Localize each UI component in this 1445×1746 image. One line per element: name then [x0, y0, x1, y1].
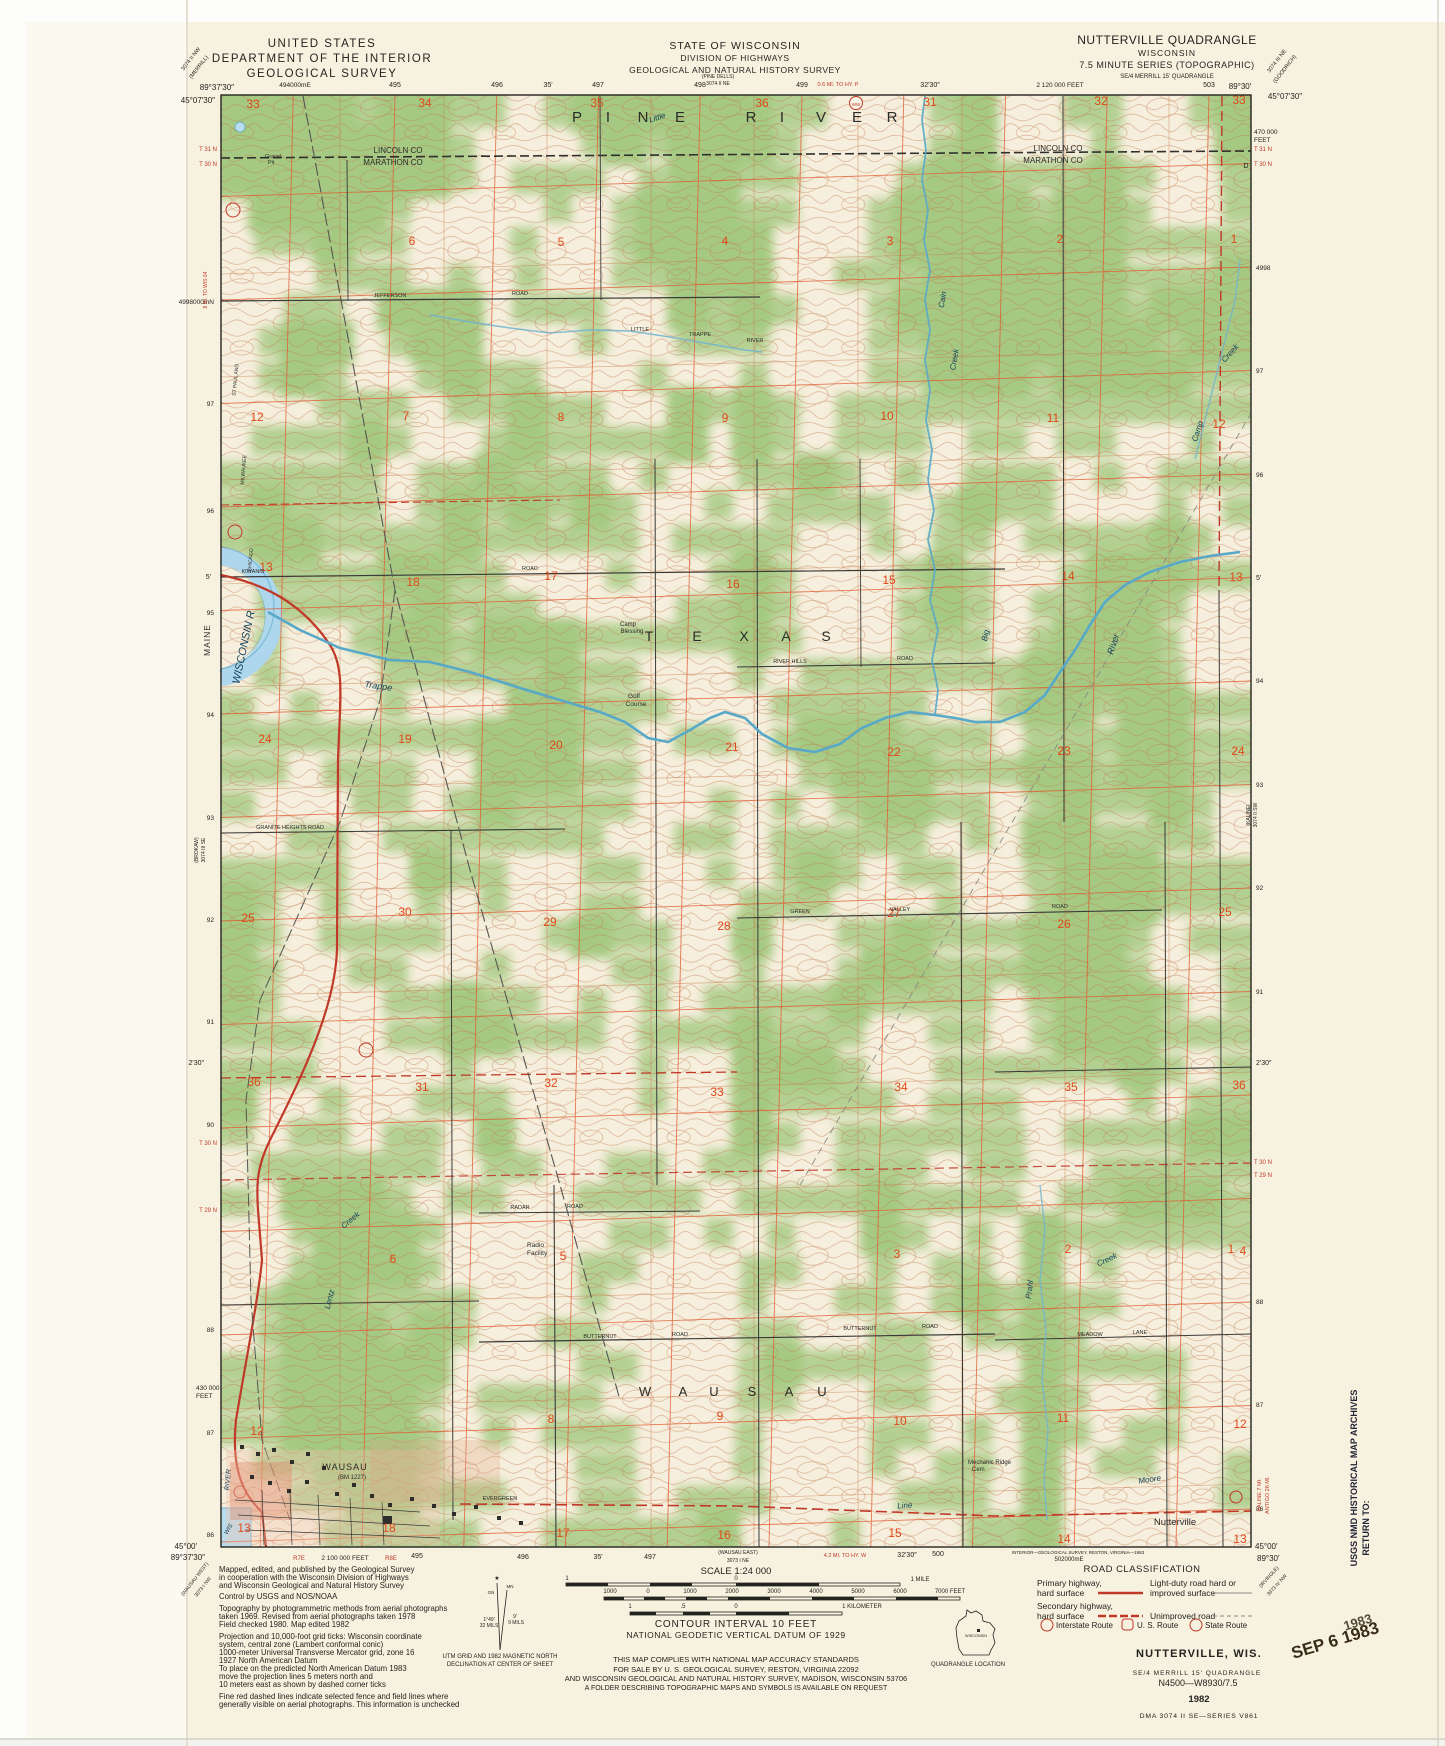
- svg-text:28: 28: [717, 919, 731, 933]
- svg-text:87: 87: [207, 1430, 215, 1437]
- svg-text:24: 24: [258, 732, 272, 746]
- svg-text:T: T: [645, 628, 654, 644]
- svg-text:N4500—W8930/7.5: N4500—W8930/7.5: [1158, 1678, 1237, 1688]
- svg-text:I: I: [780, 109, 784, 126]
- svg-text:Golf: Golf: [628, 693, 640, 700]
- svg-text:11: 11: [1057, 1411, 1070, 1425]
- svg-text:1 MILE: 1 MILE: [910, 1577, 929, 1583]
- svg-text:SE/4 MERRILL 15' QUADRANGLE: SE/4 MERRILL 15' QUADRANGLE: [1120, 74, 1214, 80]
- svg-text:497: 497: [644, 1554, 656, 1561]
- svg-text:45°07′30″: 45°07′30″: [1268, 92, 1302, 101]
- svg-text:A: A: [785, 1384, 794, 1399]
- svg-text:TRAPPE: TRAPPE: [689, 332, 711, 338]
- svg-text:STATE OF WISCONSIN: STATE OF WISCONSIN: [669, 40, 800, 52]
- svg-text:A: A: [679, 1384, 688, 1399]
- svg-text:I: I: [606, 109, 610, 126]
- svg-text:Nutterville: Nutterville: [1154, 1517, 1196, 1528]
- svg-text:86: 86: [207, 1532, 215, 1539]
- svg-text:1: 1: [1231, 232, 1238, 246]
- svg-text:2000: 2000: [725, 1589, 739, 1595]
- svg-text:JEFFERSON: JEFFERSON: [374, 293, 407, 299]
- svg-text:17: 17: [544, 569, 558, 583]
- svg-text:Primary highway,: Primary highway,: [1037, 1578, 1102, 1588]
- svg-text:4: 4: [722, 234, 729, 248]
- svg-text:ROAD: ROAD: [522, 566, 538, 572]
- svg-text:A: A: [781, 628, 791, 644]
- svg-text:(PINE DELLS): (PINE DELLS): [702, 74, 735, 80]
- svg-text:6: 6: [390, 1252, 397, 1266]
- svg-text:P: P: [572, 109, 582, 126]
- svg-text:35': 35': [543, 82, 552, 89]
- svg-text:495: 495: [389, 82, 401, 89]
- svg-text:500: 500: [932, 1551, 944, 1558]
- svg-text:ROAD: ROAD: [1052, 904, 1068, 910]
- svg-text:34: 34: [418, 96, 432, 110]
- svg-text:45°07′30″: 45°07′30″: [181, 96, 215, 105]
- svg-text:GEOLOGICAL AND NATURAL HISTORY: GEOLOGICAL AND NATURAL HISTORY SURVEY: [629, 65, 841, 75]
- svg-text:494000mE: 494000mE: [279, 82, 311, 89]
- svg-text:7000 FEET: 7000 FEET: [935, 1589, 966, 1595]
- svg-text:31: 31: [415, 1080, 429, 1094]
- svg-text:R8E: R8E: [385, 1556, 397, 1562]
- svg-text:Secondary highway,: Secondary highway,: [1037, 1601, 1113, 1611]
- svg-text:T 30 N: T 30 N: [199, 162, 217, 168]
- svg-text:11: 11: [1047, 411, 1060, 425]
- svg-text:20: 20: [549, 738, 563, 752]
- svg-text:THIS MAP COMPLIES WITH NATIONA: THIS MAP COMPLIES WITH NATIONAL MAP ACCU…: [613, 1655, 859, 1664]
- svg-text:W: W: [639, 1384, 652, 1399]
- svg-text:12: 12: [250, 1424, 264, 1438]
- svg-text:RIVER: RIVER: [747, 338, 764, 344]
- svg-text:Facility: Facility: [527, 1250, 548, 1257]
- svg-text:16: 16: [717, 1528, 731, 1542]
- svg-text:T 30 N: T 30 N: [1254, 1160, 1272, 1166]
- svg-text:18: 18: [406, 575, 420, 589]
- svg-text:Pit: Pit: [268, 160, 275, 166]
- svg-text:89°37′30″: 89°37′30″: [171, 1553, 205, 1562]
- svg-text:Light-duty road hard or: Light-duty road hard or: [1150, 1578, 1236, 1588]
- svg-text:Camp: Camp: [620, 622, 637, 628]
- svg-text:S: S: [821, 628, 830, 644]
- svg-text:1: 1: [1228, 1242, 1235, 1256]
- svg-text:LINCOLN CO: LINCOLN CO: [374, 146, 423, 155]
- svg-text:3074 II SW: 3074 II SW: [1253, 802, 1259, 827]
- svg-text:34: 34: [894, 1080, 908, 1094]
- svg-text:91: 91: [1256, 989, 1264, 996]
- svg-text:BUTTERNUT: BUTTERNUT: [583, 1334, 617, 1340]
- svg-text:19: 19: [398, 732, 412, 746]
- svg-text:9: 9: [717, 1409, 724, 1423]
- svg-text:89°30′: 89°30′: [1229, 82, 1252, 91]
- svg-text:3073 I NE: 3073 I NE: [727, 1558, 750, 1564]
- svg-text:USGS NMD HISTORICAL MAP ARCHIV: USGS NMD HISTORICAL MAP ARCHIVES: [1349, 1390, 1359, 1567]
- svg-text:E: E: [675, 109, 685, 126]
- svg-text:5: 5: [558, 235, 565, 249]
- svg-text:V: V: [816, 109, 826, 126]
- svg-text:3074 III SE: 3074 III SE: [201, 837, 207, 862]
- svg-text:88: 88: [1256, 1299, 1264, 1306]
- svg-text:NATIONAL GEODETIC VERTICAL DAT: NATIONAL GEODETIC VERTICAL DATUM OF 1929: [626, 1630, 845, 1640]
- svg-text:LITTLE: LITTLE: [631, 327, 649, 333]
- svg-text:T 29 N: T 29 N: [1254, 1173, 1272, 1179]
- svg-text:FEET: FEET: [1254, 137, 1271, 144]
- svg-text:A FOLDER DESCRIBING TOPOGRAPHI: A FOLDER DESCRIBING TOPOGRAPHIC MAPS AND…: [585, 1685, 888, 1692]
- svg-text:15: 15: [882, 573, 896, 587]
- svg-text:ROAD: ROAD: [897, 656, 913, 662]
- svg-text:2 120 000 FEET: 2 120 000 FEET: [1036, 82, 1083, 89]
- svg-text:ROAD: ROAD: [922, 1324, 938, 1330]
- svg-text:496: 496: [491, 82, 503, 89]
- svg-text:D: D: [1243, 163, 1248, 170]
- svg-text:MEADOW: MEADOW: [1077, 1332, 1103, 1338]
- svg-text:29: 29: [543, 915, 557, 929]
- svg-text:Course: Course: [626, 701, 647, 708]
- svg-text:8: 8: [548, 1412, 555, 1426]
- svg-text:Control by USGS and NOS/NOAA: Control by USGS and NOS/NOAA: [219, 1592, 338, 1601]
- svg-text:18: 18: [382, 1521, 396, 1535]
- svg-text:Unimproved road: Unimproved road: [1150, 1611, 1215, 1621]
- svg-text:1 KILOMETER: 1 KILOMETER: [842, 1604, 882, 1610]
- svg-text:1000: 1000: [683, 1589, 697, 1595]
- svg-text:2'30″: 2'30″: [1256, 1060, 1272, 1067]
- svg-text:9: 9: [722, 411, 729, 425]
- svg-text:32'30″: 32'30″: [897, 1552, 917, 1559]
- svg-text:2: 2: [1065, 1242, 1072, 1256]
- svg-text:U. S. Route: U. S. Route: [1137, 1621, 1179, 1630]
- svg-text:DEPARTMENT OF THE INTERIOR: DEPARTMENT OF THE INTERIOR: [212, 53, 432, 65]
- svg-text:91: 91: [207, 1019, 215, 1026]
- svg-text:DMA 3074 II SE—SERIES V861: DMA 3074 II SE—SERIES V861: [1140, 1713, 1259, 1720]
- svg-text:36: 36: [1232, 1078, 1246, 1092]
- svg-text:GEOLOGICAL SURVEY: GEOLOGICAL SURVEY: [247, 68, 398, 80]
- svg-text:13: 13: [1229, 570, 1243, 584]
- svg-text:Field checked 1980. Map edit: Field checked 1980. Map edited 1982: [219, 1620, 349, 1629]
- svg-text:502000mE: 502000mE: [1054, 1557, 1083, 1563]
- svg-text:7.5 MINUTE SERIES (TOPOGRAPHIC: 7.5 MINUTE SERIES (TOPOGRAPHIC): [1079, 60, 1254, 70]
- svg-text:SE/4 MERRILL 15' QUADRANGLE: SE/4 MERRILL 15' QUADRANGLE: [1133, 1670, 1261, 1677]
- svg-text:WW: WW: [852, 102, 861, 107]
- svg-text:93: 93: [207, 815, 215, 822]
- svg-text:12: 12: [1212, 417, 1226, 431]
- svg-text:DIVISION OF HIGHWAYS: DIVISION OF HIGHWAYS: [680, 53, 789, 63]
- svg-text:36: 36: [247, 1075, 261, 1089]
- svg-text:495: 495: [411, 1553, 423, 1560]
- svg-text:21: 21: [725, 740, 739, 754]
- svg-text:5': 5': [1256, 575, 1261, 582]
- svg-text:499: 499: [796, 82, 808, 89]
- svg-text:10: 10: [893, 1414, 907, 1428]
- svg-text:89°37′30″: 89°37′30″: [200, 83, 234, 92]
- svg-text:498: 498: [694, 82, 706, 89]
- svg-text:QUADRANGLE LOCATION: QUADRANGLE LOCATION: [931, 1662, 1005, 1668]
- svg-text:RIVER HILLS: RIVER HILLS: [773, 659, 807, 665]
- svg-text:KALINE 7 MI.: KALINE 7 MI.: [1257, 1478, 1263, 1512]
- svg-text:(KALINE): (KALINE): [1246, 804, 1252, 825]
- svg-text:26: 26: [1057, 917, 1071, 931]
- svg-text:GN: GN: [488, 1590, 495, 1595]
- svg-text:45°00′: 45°00′: [1255, 1542, 1278, 1551]
- svg-text:AND WISCONSIN GEOLOGICAL AND N: AND WISCONSIN GEOLOGICAL AND NATURAL HIS…: [565, 1674, 907, 1683]
- svg-text:and Wisconsin Geological and N: and Wisconsin Geological and Natural His…: [219, 1581, 404, 1590]
- svg-text:U: U: [817, 1384, 826, 1399]
- svg-text:92: 92: [207, 917, 215, 924]
- svg-text:96: 96: [207, 508, 215, 515]
- svg-text:NUTTERVILLE QUADRANGLE: NUTTERVILLE QUADRANGLE: [1077, 33, 1257, 47]
- svg-text:8: 8: [558, 410, 565, 424]
- svg-text:13: 13: [237, 1521, 251, 1535]
- svg-text:Mechanic Ridge: Mechanic Ridge: [968, 1460, 1012, 1466]
- svg-text:3074 II NE: 3074 II NE: [706, 81, 730, 87]
- svg-text:3000: 3000: [767, 1589, 781, 1595]
- svg-text:RADAR: RADAR: [510, 1205, 529, 1211]
- svg-text:87: 87: [1256, 1402, 1264, 1409]
- svg-text:NUTTERVILLE, WIS.: NUTTERVILLE, WIS.: [1136, 1648, 1262, 1660]
- svg-text:ROAD: ROAD: [672, 1332, 688, 1338]
- svg-text:88: 88: [207, 1327, 215, 1334]
- svg-text:WISCONSIN: WISCONSIN: [1138, 48, 1196, 58]
- svg-text:1000: 1000: [603, 1589, 617, 1595]
- svg-text:(BROKAW): (BROKAW): [194, 837, 200, 863]
- svg-text:MARATHON CO: MARATHON CO: [1023, 156, 1082, 165]
- svg-text:INTERIOR—GEOLOGICAL SURVEY, RE: INTERIOR—GEOLOGICAL SURVEY, RESTON, VIRG…: [1012, 1550, 1145, 1555]
- svg-text:R7E: R7E: [293, 1556, 305, 1562]
- svg-text:T 30 N: T 30 N: [199, 1141, 217, 1147]
- svg-text:T 30 N: T 30 N: [1254, 162, 1272, 168]
- svg-text:9 MILS: 9 MILS: [508, 1620, 525, 1626]
- svg-text:Blessing: Blessing: [621, 629, 644, 635]
- svg-text:ROAD: ROAD: [512, 291, 528, 297]
- svg-text:T 31 N: T 31 N: [1254, 147, 1272, 153]
- svg-text:17: 17: [556, 1526, 570, 1540]
- svg-text:32: 32: [1094, 94, 1108, 108]
- svg-text:Line: Line: [897, 1500, 913, 1510]
- svg-text:ROAD CLASSIFICATION: ROAD CLASSIFICATION: [1083, 1564, 1200, 1575]
- svg-text:35': 35': [593, 1554, 602, 1561]
- svg-text:WISCONSIN: WISCONSIN: [965, 1634, 987, 1638]
- svg-text:497: 497: [592, 82, 604, 89]
- svg-text:94: 94: [1256, 678, 1264, 685]
- svg-text:(BM 1227): (BM 1227): [338, 1475, 366, 1481]
- svg-text:T 29 N: T 29 N: [199, 1208, 217, 1214]
- svg-text:ANTIGO 26 MI.: ANTIGO 26 MI.: [1265, 1476, 1271, 1514]
- svg-text:VALLEY: VALLEY: [890, 907, 911, 913]
- svg-text:S: S: [748, 1384, 757, 1399]
- svg-text:14: 14: [1061, 569, 1075, 583]
- svg-text:2 100 000 FEET: 2 100 000 FEET: [321, 1555, 368, 1562]
- svg-text:R: R: [746, 109, 757, 126]
- svg-text:25: 25: [1218, 905, 1232, 919]
- svg-text:X: X: [739, 628, 749, 644]
- svg-text:4998: 4998: [1256, 265, 1271, 272]
- svg-text:KIWANIS: KIWANIS: [241, 569, 264, 575]
- svg-text:U: U: [709, 1384, 718, 1399]
- svg-text:CONTOUR INTERVAL 10 FEET: CONTOUR INTERVAL 10 FEET: [655, 1619, 817, 1630]
- svg-text:30: 30: [398, 905, 412, 919]
- svg-text:★: ★: [494, 1575, 499, 1582]
- svg-text:BUTTERNUT: BUTTERNUT: [843, 1326, 877, 1332]
- svg-text:94: 94: [207, 712, 215, 719]
- svg-text:15: 15: [888, 1526, 902, 1540]
- svg-text:WAUSAU: WAUSAU: [322, 1462, 367, 1472]
- svg-text:35: 35: [590, 96, 604, 110]
- svg-text:10: 10: [880, 409, 894, 423]
- svg-text:UTM GRID AND 1982 MAGNETIC NOR: UTM GRID AND 1982 MAGNETIC NORTH: [443, 1654, 558, 1660]
- svg-text:FOR SALE BY U. S. GEOLOGICAL S: FOR SALE BY U. S. GEOLOGICAL SURVEY, RES…: [613, 1665, 859, 1674]
- svg-text:2'30″: 2'30″: [189, 1060, 205, 1067]
- svg-text:32'30″: 32'30″: [920, 82, 940, 89]
- svg-text:5000: 5000: [851, 1589, 865, 1595]
- svg-text:E: E: [852, 109, 862, 126]
- svg-text:96: 96: [1256, 472, 1264, 479]
- svg-text:N: N: [638, 109, 649, 126]
- svg-text:LINCOLN CO: LINCOLN CO: [1034, 144, 1083, 153]
- svg-text:(WAUSAU EAST): (WAUSAU EAST): [718, 1550, 758, 1556]
- svg-text:5: 5: [560, 1249, 567, 1263]
- svg-text:State Route: State Route: [1205, 1621, 1248, 1630]
- svg-text:25: 25: [241, 911, 255, 925]
- svg-text:23: 23: [1057, 744, 1071, 758]
- svg-text:2: 2: [1057, 232, 1064, 246]
- svg-text:4: 4: [1240, 1244, 1247, 1258]
- svg-text:RETURN TO:: RETURN TO:: [1361, 1500, 1371, 1555]
- svg-text:4.2 MI. TO HY. W: 4.2 MI. TO HY. W: [824, 1553, 867, 1559]
- svg-text:R: R: [887, 109, 898, 126]
- svg-text:Cem: Cem: [972, 1467, 985, 1473]
- svg-text:DECLINATION AT CENTER OF SHEET: DECLINATION AT CENTER OF SHEET: [447, 1662, 554, 1668]
- svg-text:95: 95: [207, 610, 215, 617]
- svg-text:.5: .5: [680, 1604, 686, 1610]
- svg-text:generally visible on aerial ph: generally visible on aerial photographs.…: [219, 1700, 459, 1709]
- svg-text:improved surface: improved surface: [1150, 1588, 1215, 1598]
- svg-text:32: 32: [544, 1076, 558, 1090]
- svg-text:GREEN: GREEN: [790, 909, 810, 915]
- svg-text:14: 14: [1057, 1532, 1071, 1546]
- svg-text:Interstate Route: Interstate Route: [1056, 1621, 1113, 1630]
- svg-text:UNITED STATES: UNITED STATES: [268, 38, 377, 50]
- svg-text:4000: 4000: [809, 1589, 823, 1595]
- svg-text:hard surface: hard surface: [1037, 1588, 1085, 1598]
- svg-text:1982: 1982: [1188, 1694, 1209, 1705]
- svg-text:12: 12: [250, 410, 264, 424]
- svg-text:10 meters east as shown by das: 10 meters east as shown by dashed corner…: [219, 1680, 386, 1689]
- svg-text:ROAD: ROAD: [567, 1204, 583, 1210]
- svg-text:MARATHON CO: MARATHON CO: [363, 158, 422, 167]
- svg-text:45°00′: 45°00′: [175, 1542, 198, 1551]
- svg-text:430 000: 430 000: [196, 1385, 220, 1392]
- svg-text:E: E: [692, 628, 701, 644]
- svg-text:89°30′: 89°30′: [1257, 1554, 1280, 1563]
- svg-text:Radio: Radio: [527, 1242, 544, 1249]
- svg-text:97: 97: [207, 401, 215, 408]
- svg-text:5': 5': [206, 574, 211, 581]
- svg-text:GRANITE HEIGHTS ROAD: GRANITE HEIGHTS ROAD: [256, 825, 324, 831]
- svg-text:MAINE: MAINE: [202, 624, 212, 656]
- svg-text:31: 31: [923, 95, 937, 109]
- svg-text:LANE: LANE: [1133, 1330, 1148, 1336]
- svg-text:503: 503: [1203, 82, 1215, 89]
- svg-text:12: 12: [1233, 1417, 1247, 1431]
- svg-text:33: 33: [710, 1085, 724, 1099]
- svg-text:92: 92: [1256, 885, 1264, 892]
- svg-text:93: 93: [1256, 782, 1264, 789]
- svg-text:36: 36: [755, 96, 769, 110]
- svg-text:MN: MN: [507, 1584, 514, 1589]
- svg-text:13: 13: [1233, 1532, 1247, 1546]
- svg-text:3: 3: [894, 1247, 901, 1261]
- svg-text:7: 7: [403, 409, 410, 423]
- svg-text:FEET: FEET: [196, 1393, 213, 1400]
- svg-text:97: 97: [1256, 368, 1264, 375]
- svg-text:496: 496: [517, 1554, 529, 1561]
- svg-text:22: 22: [887, 745, 901, 759]
- svg-text:0.6 MI. TO HY. P: 0.6 MI. TO HY. P: [818, 82, 859, 88]
- svg-text:33: 33: [246, 97, 260, 111]
- svg-text:35: 35: [1064, 1080, 1078, 1094]
- svg-text:EVERGREEN: EVERGREEN: [483, 1496, 518, 1502]
- svg-text:16: 16: [726, 577, 740, 591]
- svg-text:6: 6: [409, 234, 416, 248]
- svg-text:6000: 6000: [893, 1589, 907, 1595]
- svg-text:32 MILS: 32 MILS: [480, 1623, 499, 1629]
- svg-text:470 000: 470 000: [1254, 129, 1278, 136]
- svg-text:8 MI. TO WIS 64: 8 MI. TO WIS 64: [203, 271, 209, 308]
- svg-text:T 31 N: T 31 N: [199, 147, 217, 153]
- svg-text:90: 90: [207, 1122, 215, 1129]
- svg-text:24: 24: [1231, 744, 1245, 758]
- svg-text:3: 3: [887, 234, 894, 248]
